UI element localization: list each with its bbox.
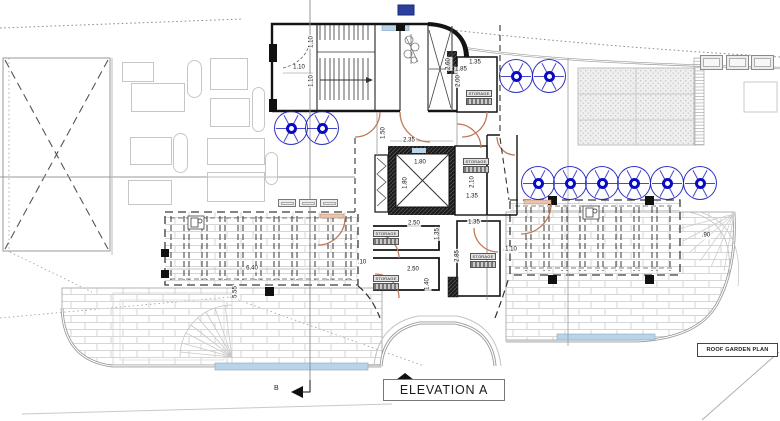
tree-symbol	[305, 111, 339, 145]
tree-symbol	[617, 166, 651, 200]
ac-unit	[299, 199, 317, 207]
dimension-label: 5.55	[233, 285, 240, 299]
side-table	[252, 87, 265, 132]
sun-lounger	[128, 180, 172, 205]
dimension-label: 1.10	[309, 74, 316, 88]
dimension-label: 1.10	[292, 65, 306, 72]
tree-symbol	[532, 59, 566, 93]
tree-symbol	[683, 166, 717, 200]
side-table	[173, 133, 188, 173]
ac-unit-grille	[302, 202, 315, 205]
dimension-label: 2.10	[470, 175, 477, 189]
dimension-label: 1.35	[467, 220, 481, 227]
tree-symbol	[553, 166, 587, 200]
dimension-label: 2.50	[406, 267, 420, 274]
ac-unit	[726, 55, 749, 70]
roof-garden-plan-label: ROOF GARDEN PLAN	[697, 343, 778, 357]
tree-center	[317, 123, 328, 134]
sun-lounger	[207, 172, 265, 202]
dimension-label: 2.35	[402, 138, 416, 145]
ac-unit	[278, 199, 296, 207]
dimension-label: 1.85	[454, 67, 468, 74]
dimension-label: 1.35	[468, 60, 482, 67]
tree-center	[533, 178, 544, 189]
tree-symbol	[585, 166, 619, 200]
storage-label: STORAGE	[373, 230, 399, 245]
tree-center	[286, 123, 297, 134]
dimension-label: 1.40	[425, 277, 432, 291]
ac-unit	[700, 55, 723, 70]
storage-label-text: STORAGE	[463, 158, 489, 165]
ac-unit-grille	[754, 58, 771, 67]
dimension-label: .10	[357, 260, 367, 267]
symbol-overlay: STORAGESTORAGESTORAGESTORAGESTORAGE1.101…	[0, 0, 780, 421]
tree-center	[544, 71, 555, 82]
ac-unit-grille	[703, 58, 720, 67]
dimension-label: 2.50	[407, 221, 421, 228]
tree-center	[511, 71, 522, 82]
dimension-label: 1.10	[504, 247, 518, 254]
tree-symbol	[499, 59, 533, 93]
ac-unit	[320, 199, 338, 207]
storage-label-text: STORAGE	[373, 275, 399, 282]
ac-unit-grille	[729, 58, 746, 67]
storage-label-area-bar	[466, 98, 492, 105]
tree-symbol	[650, 166, 684, 200]
roof-garden-plan-drawing: STORAGESTORAGESTORAGESTORAGESTORAGE1.101…	[0, 0, 780, 421]
storage-label-text: STORAGE	[466, 90, 492, 97]
side-table	[265, 152, 278, 185]
sun-lounger	[131, 83, 185, 112]
tree-symbol	[521, 166, 555, 200]
dimension-label: 2.85	[455, 249, 462, 263]
tree-center	[597, 178, 608, 189]
elevation-a-label: ELEVATION A	[383, 379, 505, 401]
side-table	[187, 60, 202, 98]
storage-label-area-bar	[373, 238, 399, 245]
ac-unit-grille	[281, 202, 294, 205]
dimension-label: .90	[701, 233, 711, 240]
storage-label-area-bar	[470, 261, 496, 268]
storage-label: STORAGE	[373, 275, 399, 290]
storage-label-text: STORAGE	[470, 253, 496, 260]
dimension-label: 2.60	[446, 57, 453, 71]
tree-center	[629, 178, 640, 189]
dimension-label: 1.35	[435, 227, 442, 241]
dimension-label: 2.00	[456, 74, 463, 88]
ac-unit	[751, 55, 774, 70]
storage-label: STORAGE	[470, 253, 496, 268]
tree-center	[662, 178, 673, 189]
storage-label: STORAGE	[463, 158, 489, 173]
ac-unit-grille	[323, 202, 336, 205]
storage-label-area-bar	[463, 166, 489, 173]
sun-lounger	[130, 137, 172, 165]
sun-lounger	[210, 98, 250, 127]
dimension-label: 1.80	[413, 160, 427, 167]
dimension-label: 1.80	[403, 176, 410, 190]
sun-lounger	[122, 62, 154, 82]
dimension-label: 6.40	[245, 266, 259, 273]
tree-center	[565, 178, 576, 189]
sun-lounger	[210, 58, 248, 90]
storage-label: STORAGE	[466, 90, 492, 105]
section-b-label: B	[274, 385, 279, 392]
storage-label-text: STORAGE	[373, 230, 399, 237]
tree-center	[695, 178, 706, 189]
tree-symbol	[274, 111, 308, 145]
storage-label-area-bar	[373, 283, 399, 290]
sun-lounger	[207, 138, 265, 165]
dimension-label: 1.35	[465, 194, 479, 201]
dimension-label: 1.50	[381, 126, 388, 140]
dimension-label: 1.10	[309, 35, 316, 49]
